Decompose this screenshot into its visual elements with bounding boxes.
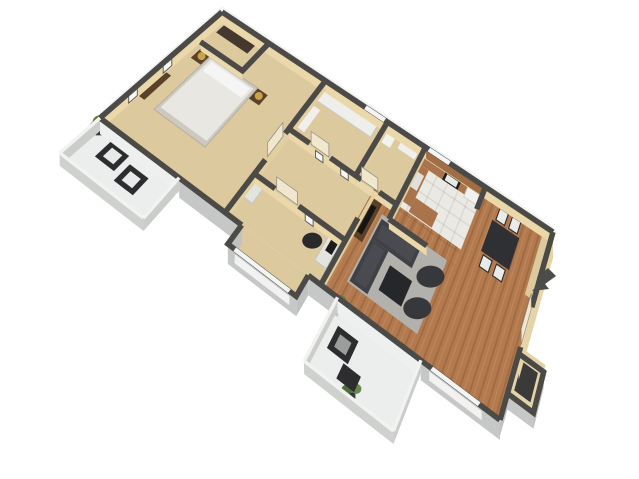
office-chair [302, 233, 322, 249]
floorplan-3d-rendering [0, 0, 639, 479]
accent-chair-2 [403, 297, 431, 319]
floorplan-scene [0, 0, 639, 479]
lamp-right [255, 92, 263, 100]
accent-chair-1 [416, 266, 444, 288]
